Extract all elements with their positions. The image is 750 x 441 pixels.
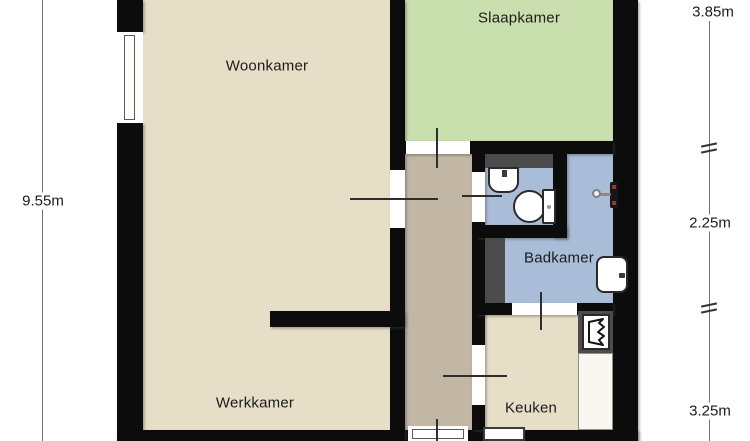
slaapkamer-door-line xyxy=(436,128,438,168)
duct-shaft-top xyxy=(480,154,553,168)
woonkamer-label: Woonkamer xyxy=(226,58,308,75)
slaapkamer-label: Slaapkamer xyxy=(478,10,560,27)
faucet-icon xyxy=(502,170,507,177)
outer-wall-left xyxy=(117,123,143,441)
slaapkamer-door xyxy=(406,141,470,154)
outer-wall-bottom xyxy=(117,430,638,441)
badkamer-door-line xyxy=(540,292,542,330)
flush-button-icon xyxy=(547,205,551,209)
badkamer-door xyxy=(512,303,577,315)
floorplan: 9.55m 3.85m 2.25m 3.25m xyxy=(0,0,750,441)
right-dimension-label-top: 3.85m xyxy=(690,4,736,21)
duct-shaft-side xyxy=(485,238,505,303)
wc-door xyxy=(472,172,485,222)
kitchen-appliance xyxy=(483,427,525,441)
window-glass xyxy=(412,429,464,439)
wall-woonkamer-werkkamer-partial xyxy=(270,311,405,327)
wall-wc-bottom xyxy=(477,225,567,238)
mixer-knob xyxy=(592,189,601,198)
shower-mixer-icon xyxy=(592,180,624,210)
kitchen-counter xyxy=(578,353,613,430)
window-glass xyxy=(124,35,135,120)
woonkamer-door-line xyxy=(350,198,438,200)
werkkamer-label: Werkkamer xyxy=(216,395,294,412)
woonkamer-window xyxy=(117,32,143,123)
mixer-handle-bottom xyxy=(612,201,616,205)
outer-wall-left-top xyxy=(117,0,143,32)
hall-window-line xyxy=(436,419,438,441)
boiler-icon xyxy=(584,316,608,348)
hall-window xyxy=(408,426,468,441)
badkamer-label: Badkamer xyxy=(524,250,594,267)
werkkamer-floor xyxy=(143,319,390,430)
mixer-handle-top xyxy=(612,185,616,189)
boiler-box xyxy=(582,314,610,350)
faucet-icon xyxy=(619,273,625,278)
boiler-closet xyxy=(578,311,613,353)
outer-wall-right xyxy=(613,0,638,441)
right-dimension-label-middle: 2.25m xyxy=(687,215,733,232)
right-dimension-label-bottom: 3.25m xyxy=(687,403,733,420)
wc-toilet-tank-icon xyxy=(542,189,556,224)
keuken-label: Keuken xyxy=(505,400,557,417)
left-dimension-label: 9.55m xyxy=(20,193,66,210)
badkamer-sink-icon xyxy=(596,256,628,293)
wc-door-line xyxy=(462,195,502,197)
left-dimension-line xyxy=(42,0,43,441)
wc-sink-icon xyxy=(488,167,519,193)
woonkamer-floor xyxy=(143,0,390,319)
keuken-door-line xyxy=(443,375,507,377)
